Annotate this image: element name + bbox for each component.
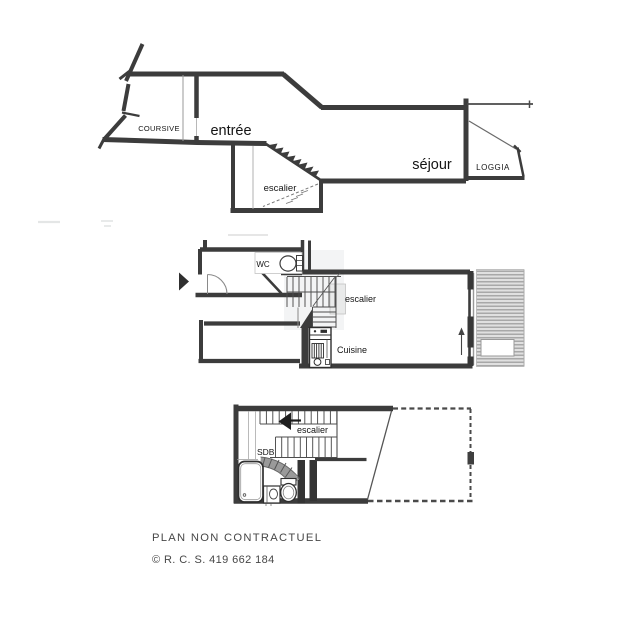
entry-door (208, 275, 228, 295)
balcony (477, 270, 525, 367)
stair-arrow-head (279, 413, 292, 431)
upper-escalier-label: escalier (264, 183, 297, 194)
slide-arrow-head (458, 328, 464, 336)
balcony-opening (481, 340, 514, 357)
toilet-icon (280, 256, 296, 271)
partition-lines (249, 411, 256, 459)
wc-label: WC (256, 260, 270, 269)
wall (103, 140, 267, 144)
diagonal-line (368, 411, 392, 500)
artifact-mark (101, 221, 113, 226)
cuisine-label: Cuisine (337, 345, 367, 355)
window-bay (458, 271, 473, 366)
upper-floor-plan: COURSIVE entrée escalier séjour LOGGIA (99, 44, 533, 212)
stair-boundaries (270, 437, 337, 458)
wall (283, 74, 322, 108)
sdb-label: SDB (257, 447, 275, 457)
wall-wedge (179, 273, 189, 291)
stair-teeth (269, 144, 319, 177)
stair-edge (266, 144, 322, 181)
floor-plan-document: COURSIVE entrée escalier séjour LOGGIA (0, 0, 640, 640)
sink-basin (270, 489, 278, 499)
entree-label: entrée (210, 123, 251, 139)
wall-bar (310, 460, 318, 501)
kitchen-unit (310, 328, 332, 368)
sejour-label: séjour (412, 157, 452, 173)
hob-icon (321, 330, 328, 333)
wall-kitchen-left (302, 328, 309, 368)
lower-floor-plan: escalier SDB (234, 405, 474, 507)
rcs-text: © R. C. S. 419 662 184 (152, 554, 275, 566)
disclaimer-text: PLAN NON CONTRACTUEL (152, 532, 322, 544)
wc-area: WC (255, 253, 303, 274)
coursive-label: COURSIVE (138, 124, 180, 133)
bathtub-icon (239, 462, 264, 503)
footer: PLAN NON CONTRACTUEL © R. C. S. 419 662 … (152, 532, 322, 566)
bathroom (239, 457, 300, 506)
stair-landing (330, 284, 346, 314)
loggia-label: LOGGIA (476, 163, 510, 172)
wall (99, 138, 105, 149)
wall-stub (468, 452, 475, 465)
burner-icon (314, 330, 316, 332)
sink-marks (266, 504, 271, 507)
door-arc (208, 275, 228, 295)
cistern-icon (297, 256, 303, 272)
scan-artifacts (38, 221, 268, 235)
sink-bowl-icon (314, 359, 321, 366)
lower-escalier-label: escalier (297, 425, 328, 435)
middle-escalier-label: escalier (345, 294, 376, 304)
floor-plan-image: COURSIVE entrée escalier séjour LOGGIA (0, 0, 640, 640)
stair-treads-upper (260, 411, 337, 424)
wall-coursive-left (104, 84, 129, 140)
middle-floor-plan: WC (179, 240, 524, 368)
loggia-diagonal-line (469, 121, 516, 149)
upper-stairs (263, 144, 322, 207)
stair-treads-lower (276, 437, 332, 458)
wall-bar (298, 460, 306, 504)
